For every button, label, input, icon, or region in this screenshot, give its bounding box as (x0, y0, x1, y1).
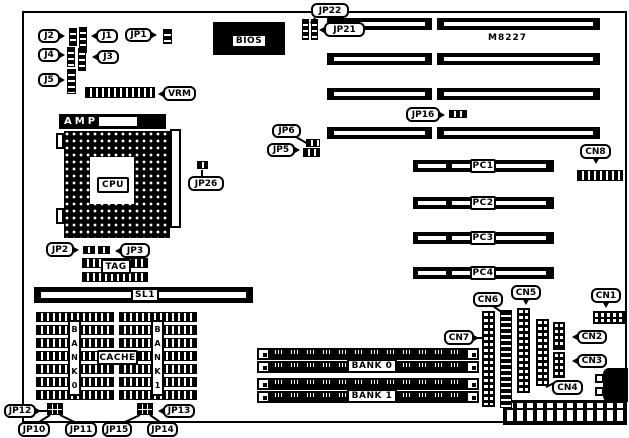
pc4-label-text: PC4 (473, 268, 494, 278)
cache-bank1-chips-chip (119, 364, 151, 374)
jumper-jp16 (449, 110, 467, 118)
isa-slot-3-left (327, 88, 432, 100)
simm-chip-legs (275, 380, 461, 384)
cache-bank0-chips-chip (36, 325, 68, 335)
callout-cn1-text: CN1 (596, 291, 616, 301)
callout-jp13-text: JP13 (168, 406, 190, 416)
callout-cn5: CN5 (511, 285, 541, 300)
keyboard-tab-bottom (595, 387, 604, 396)
simm-bank1-label-text: BANK 1 (352, 391, 393, 401)
sl1-label-text: SL1 (135, 290, 155, 300)
callout-j5: J5 (38, 73, 60, 87)
cpu-socket-tab-top (56, 133, 64, 149)
simm-latch-right (468, 380, 477, 388)
simm-latch-left (259, 350, 268, 358)
callout-jp10-text: JP10 (23, 425, 45, 435)
cn1-connector (593, 311, 627, 324)
jumper-jp2 (83, 246, 95, 254)
bios-label: BIOS (231, 34, 267, 48)
power-connector (503, 400, 627, 425)
simm-latch-right (468, 393, 477, 401)
callout-jp15: JP15 (102, 422, 132, 437)
callout-jp22: JP22 (311, 3, 349, 18)
jumper-jp26 (197, 161, 208, 169)
callout-j5-text: J5 (44, 75, 54, 85)
cache-bank1-chips-chip (161, 338, 197, 348)
simm-chip-legs (275, 350, 461, 354)
cn6-connector (500, 310, 512, 408)
callout-pointer-right (150, 31, 157, 39)
isa-slot-2-left (327, 53, 432, 65)
board-model-text: M8227 (488, 33, 532, 45)
callout-j1: J1 (96, 29, 118, 43)
callout-jp10: JP10 (18, 422, 50, 437)
callout-pointer-left (158, 407, 165, 415)
isa-slot-4-right (437, 127, 600, 139)
pc2-label-text: PC2 (473, 198, 494, 208)
simm-latch-right (468, 363, 477, 371)
callout-cn7-text: CN7 (449, 333, 469, 343)
callout-pointer-right (472, 334, 479, 342)
callout-pointer-right (438, 111, 445, 119)
cache-bank1-chips-chip (161, 377, 197, 387)
slot-contact-strip (452, 164, 546, 168)
pc1-label: PC1 (470, 159, 496, 173)
pc4-label: PC4 (470, 266, 496, 280)
callout-jp15-text: JP15 (106, 425, 128, 435)
simm-latch-left (259, 363, 268, 371)
callout-cn6: CN6 (473, 292, 503, 307)
simm-bank0-label: BANK 0 (347, 359, 397, 373)
slot-contact-strip (444, 131, 593, 135)
simm-latch-right (468, 350, 477, 358)
callout-j2-text: J2 (44, 31, 54, 41)
cpu-label-text: CPU (102, 180, 124, 190)
cache-bank0-label: B A N K 0 (68, 320, 81, 396)
callout-pointer-left (91, 32, 98, 40)
jumper-jp5 (303, 148, 320, 157)
keyboard-connector (603, 368, 628, 402)
callout-jp11: JP11 (65, 422, 97, 437)
cache-bank1-chips-chip (119, 338, 151, 348)
tag-label: TAG (101, 259, 131, 274)
cache-bank1-chips-chip (119, 325, 151, 335)
keyboard-tab-top (595, 374, 604, 383)
callout-j3-text: J3 (103, 52, 113, 62)
cn4-connector (536, 319, 549, 386)
cpu-label: CPU (97, 177, 129, 193)
cn3-connector (553, 352, 565, 378)
isa-slot-3-right (437, 88, 600, 100)
callout-j2: J2 (38, 29, 60, 43)
callout-j4: J4 (38, 48, 60, 62)
callout-pointer-left (572, 357, 579, 365)
callout-cn1: CN1 (591, 288, 621, 303)
power-pin-row (507, 403, 623, 408)
pc3-label-text: PC3 (473, 233, 494, 243)
motherboard-diagram: AMPM8227BIOSCPUTAGSL1PC1PC2PC3PC4BANK 0B… (0, 0, 629, 438)
callout-jp21-text: JP21 (333, 25, 355, 35)
pc2-label: PC2 (470, 196, 496, 210)
slot-contact-strip (452, 271, 546, 275)
cache-bank0-chips-chip (36, 364, 68, 374)
callout-cn4-text: CN4 (557, 383, 577, 393)
cache-bank1-label: B A N K 1 (151, 320, 164, 396)
callout-pointer-left (92, 53, 99, 61)
callout-jp14-text: JP14 (151, 425, 173, 435)
cache-bank0-chips-chip (36, 351, 68, 361)
callout-cn8: CN8 (580, 144, 611, 159)
jumper-j3 (78, 48, 86, 71)
callout-pointer-left (158, 90, 165, 98)
callout-jp12-text: JP12 (9, 406, 31, 416)
cache-bank1-chips-chip (161, 351, 197, 361)
callout-pointer-right (72, 246, 79, 254)
cpu-socket-amp-bar: AMP (59, 114, 166, 129)
slot-contact-strip (418, 201, 446, 205)
jumper-j2 (69, 28, 77, 46)
callout-cn2: CN2 (577, 330, 607, 344)
callout-jp1-text: JP1 (130, 30, 146, 40)
cache-bank1-label-text: B A N K 1 (154, 325, 161, 390)
callout-jp6-text: JP6 (278, 126, 294, 136)
jumper-j4 (67, 47, 75, 67)
cn7-connector (482, 311, 495, 407)
cache-bank0-chips-chip (78, 325, 114, 335)
slot-contact-strip (334, 92, 425, 96)
cn2-connector (553, 322, 565, 350)
callout-cn3: CN3 (577, 354, 607, 368)
cache-bank0-chips-chip (78, 338, 114, 348)
board-model-text-text: M8227 (488, 33, 527, 43)
callout-jp11-text: JP11 (70, 425, 92, 435)
cpu-socket-lever (170, 129, 181, 228)
cache-bank0-chips-chip (36, 338, 68, 348)
callout-jp2-text: JP2 (52, 245, 68, 255)
callout-pointer-right (58, 51, 65, 59)
slot-contact-strip (334, 57, 425, 61)
callout-jp26: JP26 (188, 176, 224, 191)
jumper-jp3 (98, 246, 110, 254)
slot-contact-strip (418, 271, 446, 275)
simm-bank1-label: BANK 1 (347, 389, 397, 403)
cn5-connector (517, 308, 530, 393)
callout-pointer-left (319, 26, 326, 34)
jumper-jp22-a (302, 19, 309, 40)
cache-label-text: CACHE (99, 353, 135, 363)
callout-jp3-text: JP3 (127, 246, 143, 256)
callout-jp3: JP3 (120, 243, 150, 258)
cache-bank0-label-text: B A N K 0 (71, 325, 78, 390)
slot-contact-strip (452, 236, 546, 240)
cache-bank0-chips-chip (78, 377, 114, 387)
pc3-label: PC3 (470, 231, 496, 245)
callout-pointer-left (115, 247, 122, 255)
callout-jp14: JP14 (147, 422, 178, 437)
callout-pointer-down (592, 157, 600, 164)
callout-vrm-text: VRM (168, 89, 191, 99)
pc1-label-text: PC1 (473, 161, 494, 171)
callout-jp5-text: JP5 (273, 145, 289, 155)
cpu-socket-tab-bottom (56, 208, 64, 224)
callout-vrm: VRM (163, 86, 196, 101)
callout-pointer-left (572, 333, 579, 341)
slot-contact-strip (444, 22, 593, 26)
cache-bank1-chips-chip (119, 377, 151, 387)
slot-contact-strip (334, 131, 425, 135)
callout-pointer-right (34, 407, 41, 415)
simm-latch-left (259, 393, 268, 401)
callout-jp6: JP6 (272, 124, 301, 138)
callout-jp16-text: JP16 (412, 110, 434, 120)
callout-cn5-text: CN5 (516, 288, 536, 298)
jumper-j5 (67, 69, 76, 94)
slot-contact-strip (418, 164, 446, 168)
cn8-connector (577, 170, 623, 181)
cache-label: CACHE (97, 350, 138, 365)
callout-j3: J3 (97, 50, 119, 64)
callout-j4-text: J4 (44, 50, 54, 60)
callout-pointer-right (58, 76, 65, 84)
callout-cn4: CN4 (552, 380, 583, 395)
slot-contact-strip (418, 236, 446, 240)
isa-slot-1-right (437, 18, 600, 30)
vrm-connector (85, 87, 155, 98)
callout-jp12: JP12 (4, 404, 36, 418)
callout-jp2: JP2 (46, 242, 74, 257)
isa-slot-4-left (327, 127, 432, 139)
callout-jp21: JP21 (324, 22, 365, 37)
slot-contact-strip (444, 57, 593, 61)
tag-label-text: TAG (105, 262, 126, 272)
amp-logo-box (99, 117, 137, 126)
callout-pointer-right (293, 146, 300, 154)
callout-jp16: JP16 (406, 107, 440, 122)
callout-cn2-text: CN2 (582, 332, 602, 342)
callout-j1-text: J1 (102, 31, 112, 41)
callout-jp22-text: JP22 (319, 6, 341, 16)
callout-jp26-text: JP26 (195, 179, 217, 189)
cpu-socket-amp-bar-text: AMP (64, 116, 98, 127)
callout-jp1: JP1 (125, 28, 152, 42)
power-pin-row (507, 410, 623, 421)
callout-pointer-down (522, 298, 530, 305)
callout-jp13: JP13 (163, 404, 195, 418)
isa-slot-2-right (437, 53, 600, 65)
callout-cn7: CN7 (444, 330, 474, 345)
callout-jp5: JP5 (267, 143, 295, 157)
callout-cn3-text: CN3 (582, 356, 602, 366)
bios-label-text: BIOS (236, 36, 262, 46)
callout-cn6-text: CN6 (478, 295, 498, 305)
cache-bank0-chips-chip (36, 377, 68, 387)
callout-pointer-right (58, 32, 65, 40)
jumper-jp1 (163, 29, 172, 44)
callout-cn8-text: CN8 (585, 147, 605, 157)
simm-bank0-label-text: BANK 0 (352, 361, 393, 371)
cache-bank1-chips-chip (161, 325, 197, 335)
cache-bank1-chips-chip (161, 364, 197, 374)
cache-bank0-chips-chip (78, 364, 114, 374)
simm-latch-left (259, 380, 268, 388)
jumper-jp6 (306, 139, 320, 147)
callout-pointer-down (602, 301, 610, 308)
slot-contact-strip (444, 92, 593, 96)
slot-contact-strip (452, 201, 546, 205)
sl1-label: SL1 (131, 288, 159, 302)
